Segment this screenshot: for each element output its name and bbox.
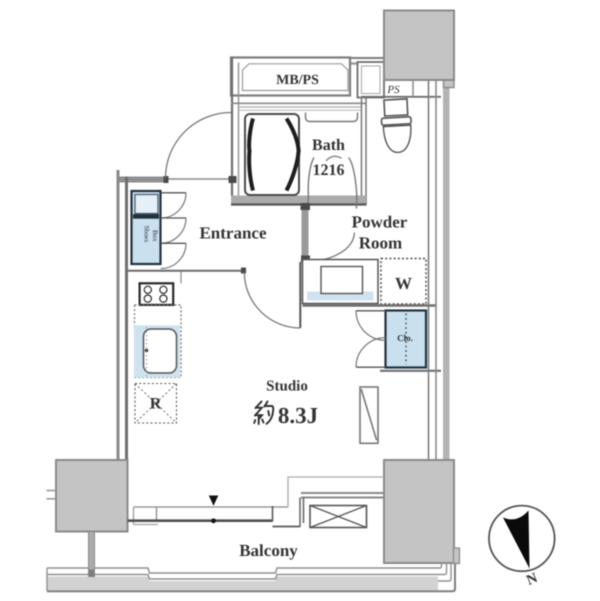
svg-text:PS: PS: [386, 84, 400, 96]
svg-text:Studio: Studio: [266, 379, 308, 395]
svg-text:MB/PS: MB/PS: [276, 73, 319, 88]
svg-text:Shoes: Shoes: [143, 226, 151, 243]
svg-text:Balcony: Balcony: [239, 541, 298, 560]
svg-text:Box: Box: [151, 230, 159, 242]
svg-text:Clo.: Clo.: [397, 333, 413, 343]
svg-text:W: W: [395, 274, 412, 293]
svg-text:R: R: [150, 396, 162, 413]
svg-text:8.3J: 8.3J: [278, 403, 318, 428]
svg-text:Room: Room: [359, 234, 402, 253]
svg-text:Entrance: Entrance: [199, 224, 267, 243]
svg-text:Powder: Powder: [352, 213, 408, 232]
svg-text:Bath: Bath: [312, 137, 345, 154]
svg-text:1216: 1216: [313, 162, 345, 179]
